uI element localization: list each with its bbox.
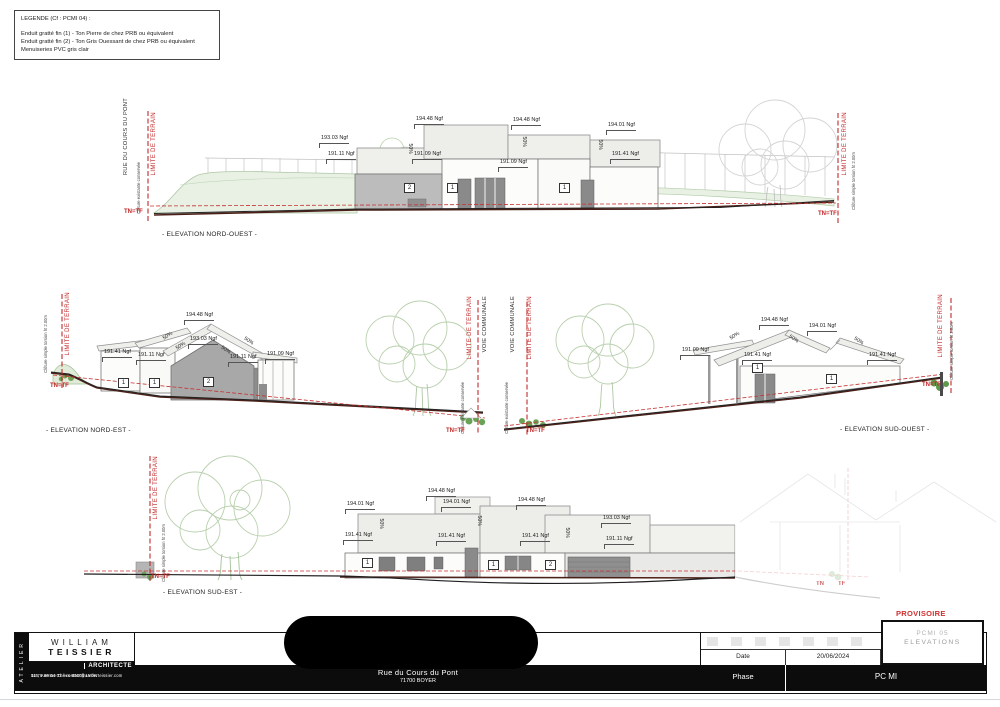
- phase-value: PC MI: [786, 665, 986, 691]
- dimension-label: 194.48 Ngf: [415, 117, 444, 125]
- elevation-caption: - ELEVATION NORD-OUEST -: [162, 232, 257, 239]
- elevation-nord-est-drawing: [35, 288, 490, 445]
- dimension-label: 194.01 Ngf: [607, 123, 636, 131]
- architect-contact-box: ARCHITECTE 115, Avenue Thiers 69006 LYON…: [29, 662, 135, 691]
- tn-tf-label: TN=TF: [151, 574, 170, 580]
- dimension-label: 194.01 Ngf: [442, 500, 471, 508]
- dimension-label: 194.01 Ngf: [808, 324, 837, 332]
- tree-outline: [366, 301, 471, 416]
- tn-tf-label: TN=TF: [446, 428, 465, 434]
- slope-label: 50%: [377, 519, 382, 529]
- phase-bar: Phase PC MI: [701, 665, 986, 691]
- dimension-label: 191.11 Ngf: [327, 152, 356, 160]
- property-limit-label: LIMITE DE TERRAIN: [527, 296, 533, 359]
- tn-tf-label: TN=TF: [50, 383, 69, 389]
- dimension-label: 191.41 Ngf: [611, 152, 640, 160]
- tn-tf-label: TF: [838, 581, 845, 587]
- tn-tf-label: TN=TF: [818, 211, 837, 217]
- page-edge-line: [0, 699, 1000, 700]
- property-limit-label: LIMITE DE TERRAIN: [467, 296, 473, 359]
- dimension-label: 193.03 Ngf: [602, 516, 631, 524]
- vertical-label: RUE DU COURS DU PONT: [123, 98, 129, 175]
- dimension-label: 194.01 Ngf: [346, 502, 375, 510]
- property-limit-label: LIMITE DE TERRAIN: [153, 456, 159, 519]
- project-street: Rue du Cours du Pont: [135, 668, 701, 677]
- property-limit-label: LIMITE DE TERRAIN: [65, 292, 71, 355]
- sheet-reference-ghost: PCMI 05: [883, 630, 982, 637]
- atelier-label: ATELIER: [19, 641, 25, 682]
- phase-label: Phase: [701, 665, 786, 691]
- fence-note: Clôture existante conservée: [505, 382, 509, 434]
- architect-first-name: WILLIAM: [51, 638, 112, 647]
- date-label: Date: [701, 650, 786, 665]
- tn-tf-label: TN=TF: [526, 428, 545, 434]
- legend-line: Enduit gratté fin (2) - Ton Gris Ouessan…: [21, 38, 213, 46]
- client-redaction-oval: [284, 616, 538, 669]
- dimension-label: 193.03 Ngf: [189, 337, 218, 345]
- slope-label: 50%: [520, 137, 525, 147]
- fence-note: Clôture simple torsion ht 2.00m: [44, 315, 48, 373]
- elevation-sud-ouest-drawing: [500, 288, 970, 445]
- property-limit-label: LIMITE DE TERRAIN: [151, 112, 157, 175]
- date-value: 20/06/2024: [786, 650, 881, 665]
- dimension-label: 191.41 Ngf: [868, 353, 897, 361]
- tn-tf-label: TN: [816, 581, 824, 587]
- architect-name-box: WILLIAM TEISSIER: [29, 633, 135, 662]
- dimension-label: 194.48 Ngf: [185, 313, 214, 321]
- tree-outline: [165, 456, 290, 580]
- sheet-title-cell: PCMI 05 ELEVATIONS: [881, 620, 984, 665]
- slope-label: 50%: [475, 516, 480, 526]
- dimension-label: 194.48 Ngf: [760, 318, 789, 326]
- dimension-label: 191.09 Ngf: [681, 348, 710, 356]
- vertical-label: VOIE COMMUNALE: [482, 296, 488, 352]
- dimension-label: 191.41 Ngf: [521, 534, 550, 542]
- atelier-strip: ATELIER: [15, 633, 29, 691]
- legend-box: LEGENDE (Cf : PCMI 04) : Enduit gratté f…: [14, 10, 220, 60]
- elevation-caption: - ELEVATION SUD-OUEST -: [840, 427, 929, 434]
- dimension-label: 194.48 Ngf: [517, 498, 546, 506]
- fence-note: Clôture existante conservée: [137, 162, 141, 214]
- slope-label: 50%: [406, 144, 411, 154]
- dimension-label: 191.11 Ngf: [605, 537, 634, 545]
- elevation-caption: - ELEVATION SUD-EST -: [163, 590, 242, 597]
- tree-outline-large: [719, 100, 837, 207]
- sheet-redaction-veil: [886, 638, 980, 647]
- slope-label: 50%: [563, 528, 568, 538]
- fence-note: Clôture existante conservée: [461, 382, 465, 434]
- elevation-nord-ouest-drawing: [120, 95, 870, 245]
- material-badge: 1: [559, 183, 570, 193]
- fence-note: Clôture simple torsion ht 2.00m: [950, 322, 954, 380]
- fence-note: Clôture simple torsion ht 2.00m: [852, 152, 856, 210]
- material-badge: 1: [447, 183, 458, 193]
- dimension-label: 193.03 Ngf: [320, 136, 349, 144]
- material-badge: 1: [752, 363, 763, 373]
- material-badge: 1: [118, 378, 129, 388]
- material-badge: 1: [826, 374, 837, 384]
- architect-address-line: 04 78 89 04 02 / contact@atelierteissier…: [31, 673, 123, 679]
- dimension-label: 191.09 Ngf: [499, 160, 528, 168]
- architect-role: ARCHITECTE: [84, 663, 132, 669]
- dimension-label: 191.41 Ngf: [344, 533, 373, 541]
- property-limit-label: LIMITE DE TERRAIN: [938, 294, 944, 357]
- dimension-label: 194.48 Ngf: [512, 118, 541, 126]
- dimension-label: 191.41 Ngf: [103, 350, 132, 358]
- vertical-label: VOIE COMMUNALE: [510, 296, 516, 352]
- legend-line: Menuiseries PVC gris clair: [21, 46, 213, 54]
- dimension-label: 191.09 Ngf: [266, 352, 295, 360]
- dimension-label: 194.48 Ngf: [427, 489, 456, 497]
- tn-tf-label: TN=TF: [124, 209, 143, 215]
- dimension-label: 191.11 Ngf: [137, 353, 166, 361]
- elevation-caption: - ELEVATION NORD-EST -: [46, 428, 131, 435]
- dimension-label: 191.09 Ngf: [413, 152, 442, 160]
- material-badge: 1: [149, 378, 160, 388]
- material-badge: 2: [404, 183, 415, 193]
- property-limit-label: LIMITE DE TERRAIN: [842, 112, 848, 175]
- dimension-label: 191.41 Ngf: [743, 353, 772, 361]
- legend-line: Enduit gratté fin (1) - Ton Pierre de ch…: [21, 30, 213, 38]
- redacted-info-row: [701, 633, 881, 650]
- tn-tf-label: TN=TF: [922, 382, 941, 388]
- material-badge: 1: [362, 558, 373, 568]
- architect-last-name: TEISSIER: [48, 647, 115, 657]
- dimension-label: 191.41 Ngf: [437, 534, 466, 542]
- slope-label: 50%: [596, 140, 601, 150]
- tree-outline: [556, 304, 654, 416]
- material-badge: 1: [488, 560, 499, 570]
- legend-title: LEGENDE (Cf : PCMI 04) :: [21, 15, 213, 23]
- redaction-veil: [735, 452, 1000, 632]
- material-badge: 2: [545, 560, 556, 570]
- dimension-label: 191.11 Ngf: [229, 355, 258, 363]
- redacted-text-blocks: [707, 637, 873, 646]
- title-block: ATELIER WILLIAM TEISSIER ARCHITECTE 115,…: [14, 632, 987, 694]
- material-badge: 2: [203, 377, 214, 387]
- provisional-stamp: PROVISOIRE: [896, 610, 946, 618]
- project-city: 71700 BOYER: [135, 678, 701, 684]
